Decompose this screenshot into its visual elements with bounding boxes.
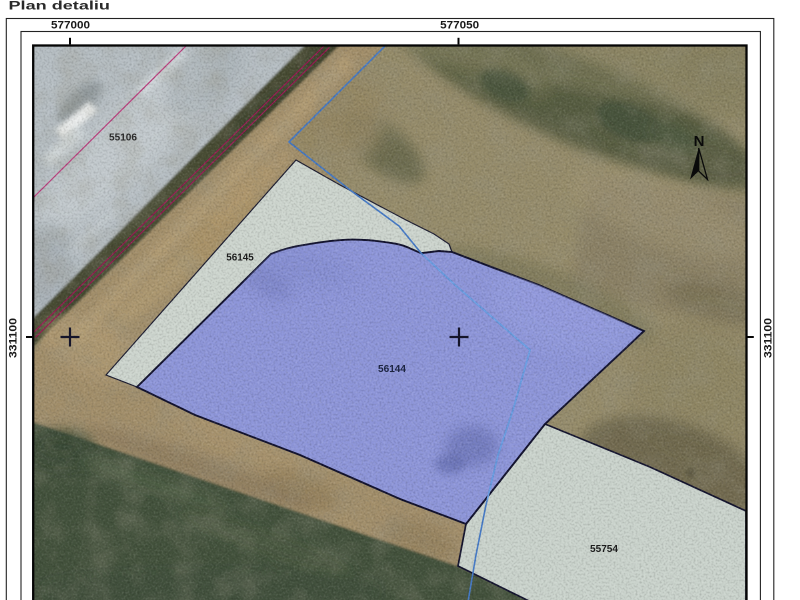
svg-text:56144: 56144: [378, 364, 406, 375]
svg-text:331100: 331100: [763, 318, 775, 358]
svg-text:577000: 577000: [51, 19, 90, 31]
svg-text:577050: 577050: [440, 19, 479, 31]
svg-text:N: N: [694, 133, 705, 150]
svg-text:56145: 56145: [226, 253, 254, 264]
svg-text:331100: 331100: [8, 318, 20, 358]
svg-text:55754: 55754: [590, 544, 618, 555]
svg-text:Plan detaliu: Plan detaliu: [9, 0, 111, 12]
svg-text:55106: 55106: [109, 133, 137, 144]
